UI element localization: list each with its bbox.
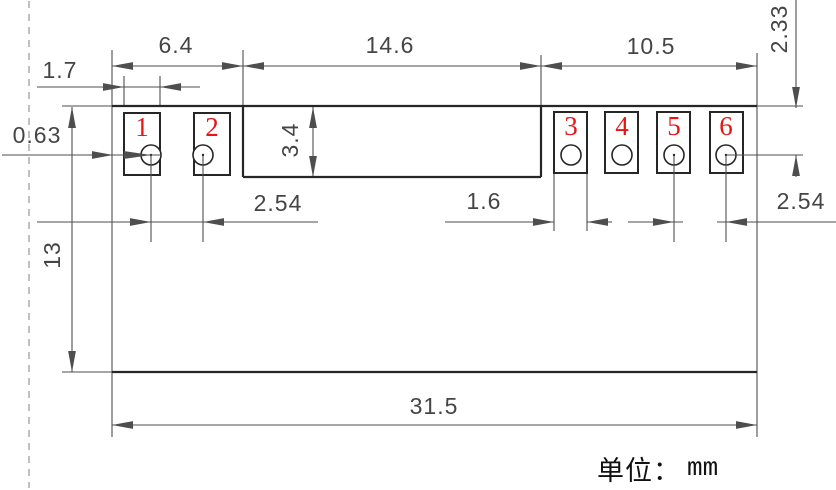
dimension-arrow: [68, 107, 76, 128]
dimension-arrow: [541, 62, 562, 70]
dimension-arrow: [520, 62, 541, 70]
dim-label-hole-offset-from-top: 2.33: [766, 5, 792, 54]
dim-label-pad1-width: 1.7: [43, 57, 78, 83]
unit-label: 单位： mm: [597, 451, 718, 485]
dimension-drawing-page: 1234566.41.714.610.52.330.633.4132.541.6…: [0, 0, 836, 490]
pad-number-5: 5: [667, 111, 681, 141]
dimension-arrow: [533, 218, 554, 226]
dim-label-right-section-width: 10.5: [627, 33, 676, 59]
dimension-arrow: [130, 218, 151, 226]
pad-number-2: 2: [205, 112, 219, 142]
dimension-arrow: [112, 421, 133, 429]
dimension-drawing: 1234566.41.714.610.52.330.633.4132.541.6…: [0, 0, 836, 490]
unit-label-value: mm: [687, 453, 718, 483]
dim-label-body-height: 13: [39, 241, 65, 269]
pad-number-4: 4: [615, 111, 629, 141]
dim-label-left-section-width: 6.4: [159, 32, 194, 58]
dimension-arrow: [68, 351, 76, 372]
dimension-arrow: [112, 62, 133, 70]
unit-label-prefix: 单位：: [597, 449, 681, 488]
dimension-arrow: [587, 218, 608, 226]
dimension-arrow: [160, 83, 181, 91]
pad-number-6: 6: [719, 111, 733, 141]
dimension-arrow: [103, 83, 124, 91]
dim-label-pad-inset-from-left-edge: 0.63: [13, 122, 62, 148]
dimension-arrow: [92, 151, 113, 159]
dim-label-hole-pitch-left: 2.54: [254, 190, 303, 216]
dimension-arrow: [726, 218, 747, 226]
dimension-arrow: [222, 62, 243, 70]
dim-label-pad3-width: 1.6: [467, 188, 502, 214]
dim-label-center-section-height: 3.4: [277, 123, 303, 158]
pad-number-3: 3: [564, 111, 578, 141]
dimension-arrow: [736, 421, 757, 429]
dimension-arrow: [309, 107, 317, 128]
dim-label-overall-width: 31.5: [410, 393, 459, 419]
dimension-arrow: [243, 62, 264, 70]
pad-hole-center-mark-5: [673, 154, 675, 156]
dimension-arrow: [792, 87, 800, 108]
dimension-arrow: [792, 155, 800, 176]
dimension-arrow: [309, 156, 317, 177]
dim-label-center-section-width: 14.6: [366, 32, 415, 58]
pad-number-1: 1: [135, 112, 149, 142]
dim-label-hole-pitch-right: 2.54: [777, 188, 826, 214]
dimension-arrow: [653, 218, 674, 226]
dimension-arrow: [736, 62, 757, 70]
dimension-arrow: [203, 218, 224, 226]
pad-hole-4: [612, 145, 632, 165]
pad-hole-3: [561, 145, 581, 165]
pad-hole-center-mark-2: [202, 154, 204, 156]
